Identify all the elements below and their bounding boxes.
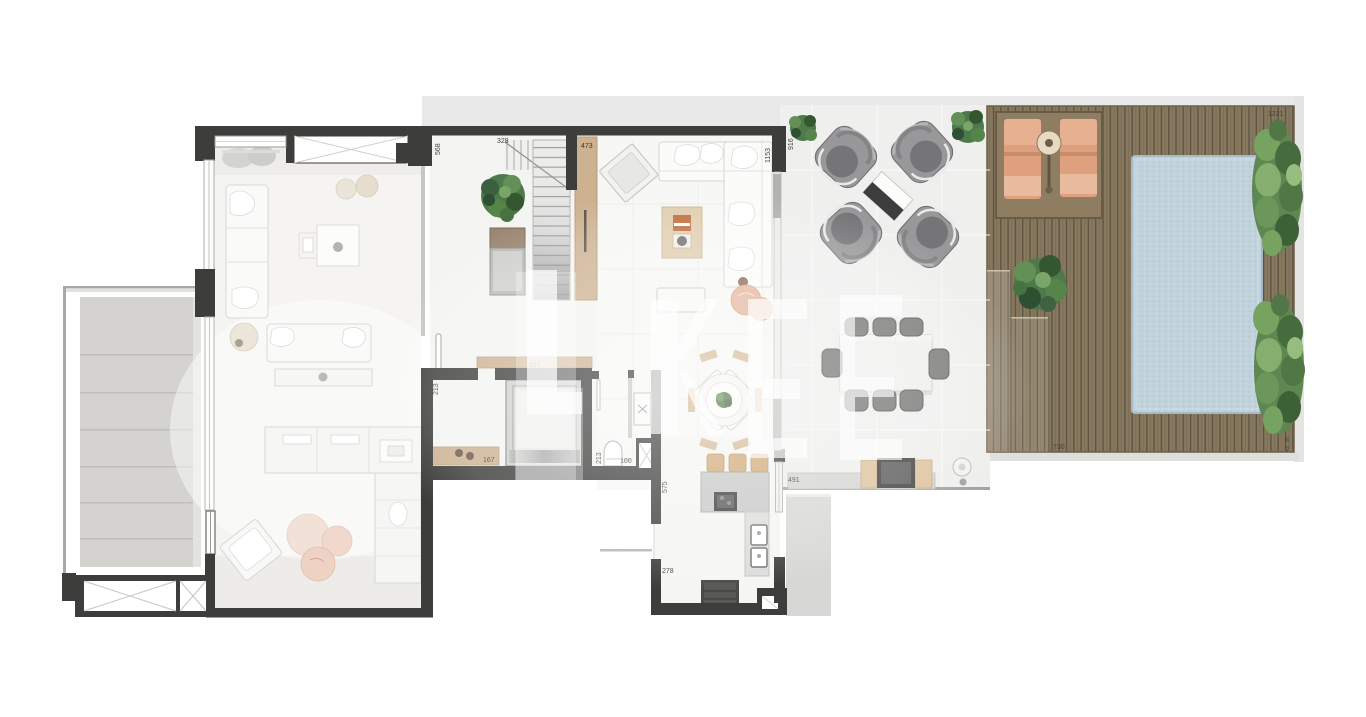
svg-text:916: 916 bbox=[788, 138, 795, 150]
svg-text:730: 730 bbox=[1053, 444, 1065, 451]
svg-text:328: 328 bbox=[497, 138, 509, 145]
svg-text:1153: 1153 bbox=[765, 148, 772, 163]
svg-text:568: 568 bbox=[435, 143, 442, 155]
svg-text:43: 43 bbox=[1285, 446, 1291, 452]
svg-text:1221: 1221 bbox=[1268, 111, 1284, 118]
svg-text:38: 38 bbox=[1285, 437, 1291, 443]
svg-text:473: 473 bbox=[581, 143, 593, 150]
